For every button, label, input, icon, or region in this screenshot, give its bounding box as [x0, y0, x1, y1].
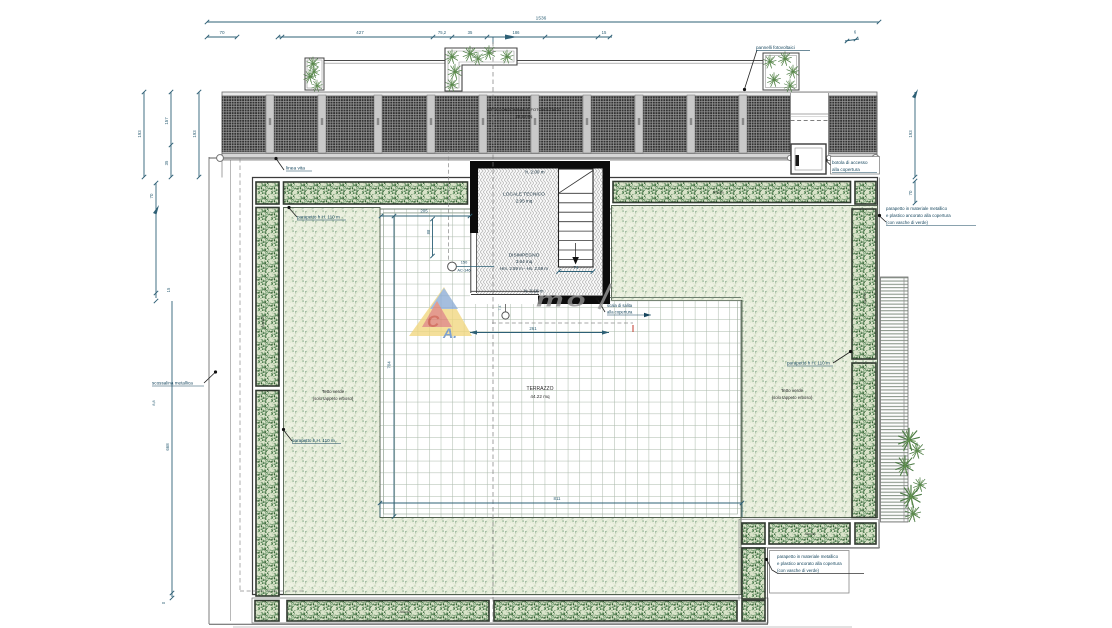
svg-text:70: 70	[908, 190, 913, 195]
svg-text:Tetto verde: Tetto verde	[781, 388, 804, 393]
svg-text:205: 205	[420, 209, 428, 214]
svg-text:157: 157	[164, 117, 169, 125]
svg-text:28.33 mq: 28.33 mq	[516, 114, 533, 119]
svg-text:193: 193	[192, 130, 197, 138]
svg-text:2.95 mq: 2.95 mq	[516, 199, 533, 204]
svg-text:parapetto in materiale metalli: parapetto in materiale metallico	[777, 554, 839, 559]
svg-text:70: 70	[149, 193, 154, 198]
svg-text:(solo tappeto erboso): (solo tappeto erboso)	[313, 396, 354, 401]
svg-text:(con vasche di verde): (con vasche di verde)	[777, 568, 820, 573]
svg-text:186: 186	[513, 30, 521, 35]
svg-text:mo: mo	[536, 288, 589, 311]
svg-text:70: 70	[219, 30, 225, 35]
svg-text:Aiuola: Aiuola	[804, 531, 816, 536]
svg-text:parapetto h H. 110 m: parapetto h H. 110 m	[297, 215, 340, 220]
svg-text:1536: 1536	[536, 16, 547, 22]
svg-text:35: 35	[468, 30, 473, 35]
svg-text:(solo tappeto erboso): (solo tappeto erboso)	[772, 395, 813, 400]
svg-text:scala di salita: scala di salita	[607, 303, 633, 308]
svg-text:3.64 mq: 3.64 mq	[516, 259, 533, 264]
svg-text:Aiuola: Aiuola	[862, 292, 867, 304]
svg-text:LOCALE TECNICO: LOCALE TECNICO	[503, 192, 545, 198]
svg-text:88: 88	[426, 229, 431, 234]
svg-text:AREA CONDOMINIALE FOTOVOLTAICO: AREA CONDOMINIALE FOTOVOLTAICO	[487, 107, 561, 112]
svg-text:15: 15	[602, 30, 607, 35]
svg-text:TERRAZZO: TERRAZZO	[527, 386, 554, 392]
svg-text:35: 35	[164, 160, 169, 165]
svg-text:Aiuola: Aiuola	[260, 316, 265, 328]
svg-text:7,4: 7,4	[498, 306, 502, 311]
svg-text:Aiuola: Aiuola	[712, 190, 724, 195]
svg-text:811: 811	[554, 496, 562, 501]
svg-text:linea vita: linea vita	[286, 166, 305, 172]
svg-text:e plastico ancorato alla coper: e plastico ancorato alla copertura	[777, 561, 842, 566]
svg-text:A.: A.	[442, 325, 457, 341]
svg-text:Aiuola: Aiuola	[399, 609, 411, 614]
svg-text:15: 15	[166, 287, 171, 292]
svg-text:261: 261	[529, 326, 537, 331]
svg-text:alla copertura: alla copertura	[607, 310, 633, 315]
svg-text:704: 704	[387, 361, 392, 369]
svg-text:74: 74	[574, 265, 579, 270]
svg-text:e plastico ancorato alla coper: e plastico ancorato alla copertura	[886, 213, 951, 218]
svg-text:AC-146: AC-146	[457, 268, 470, 273]
svg-text:427: 427	[356, 30, 364, 35]
svg-text:150: 150	[461, 260, 468, 265]
svg-text:scossalina metallica: scossalina metallica	[152, 381, 193, 386]
svg-text:parapetto h H. 110 m: parapetto h H. 110 m	[787, 361, 830, 366]
svg-text:C: C	[427, 312, 440, 331]
svg-text:75,2: 75,2	[438, 30, 447, 35]
svg-text:parapetto h H. 110 m: parapetto h H. 110 m	[292, 438, 335, 443]
svg-text:193: 193	[908, 130, 913, 138]
svg-text:193: 193	[137, 130, 142, 138]
svg-text:668: 668	[165, 443, 170, 451]
svg-text:Tetto verde: Tetto verde	[322, 389, 345, 394]
svg-text:alla copertura: alla copertura	[832, 167, 860, 172]
svg-text:parapetto in materiale metalli: parapetto in materiale metallico	[886, 206, 948, 211]
svg-text:Hm. 2.59 m - Hs. 2.59 m: Hm. 2.59 m - Hs. 2.59 m	[500, 266, 548, 271]
svg-text:(con vasche di verde): (con vasche di verde)	[886, 220, 929, 225]
svg-text:44.22 mq: 44.22 mq	[530, 394, 550, 399]
svg-text:pannelli fotovoltaici: pannelli fotovoltaici	[756, 45, 795, 50]
svg-text:DISIMPEGNO: DISIMPEGNO	[509, 253, 540, 259]
svg-text:botola di accesso: botola di accesso	[832, 160, 868, 165]
svg-text:h. 2.00 m: h. 2.00 m	[525, 170, 544, 175]
svg-text:8,8: 8,8	[152, 400, 156, 405]
